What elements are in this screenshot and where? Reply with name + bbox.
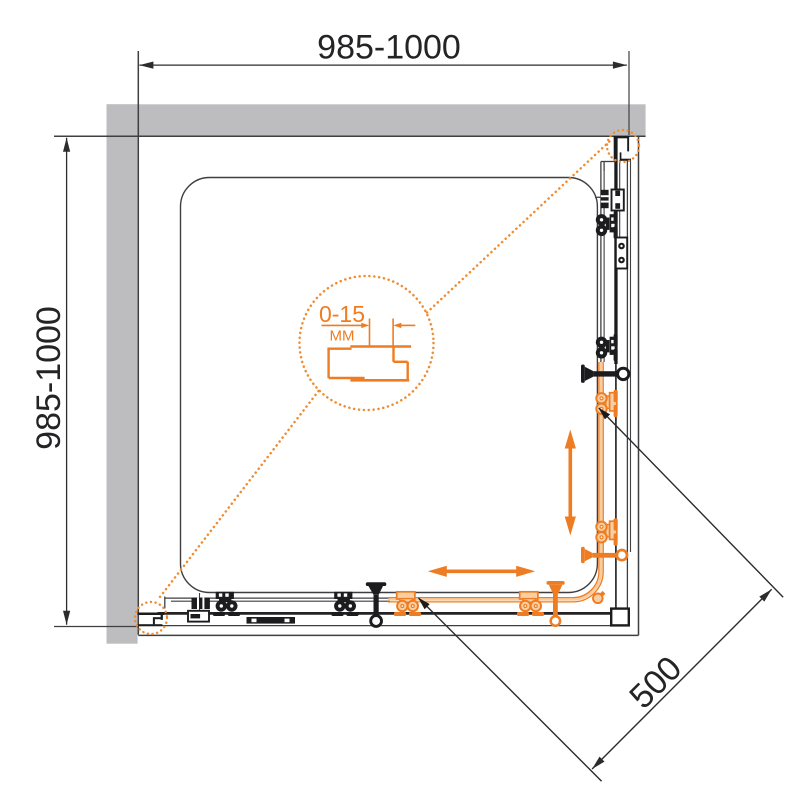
svg-text:500: 500 (622, 649, 689, 716)
svg-text:ММ: ММ (330, 328, 355, 345)
svg-text:985-1000: 985-1000 (317, 29, 461, 67)
svg-text:0-15: 0-15 (319, 301, 365, 327)
svg-text:985-1000: 985-1000 (30, 306, 68, 450)
